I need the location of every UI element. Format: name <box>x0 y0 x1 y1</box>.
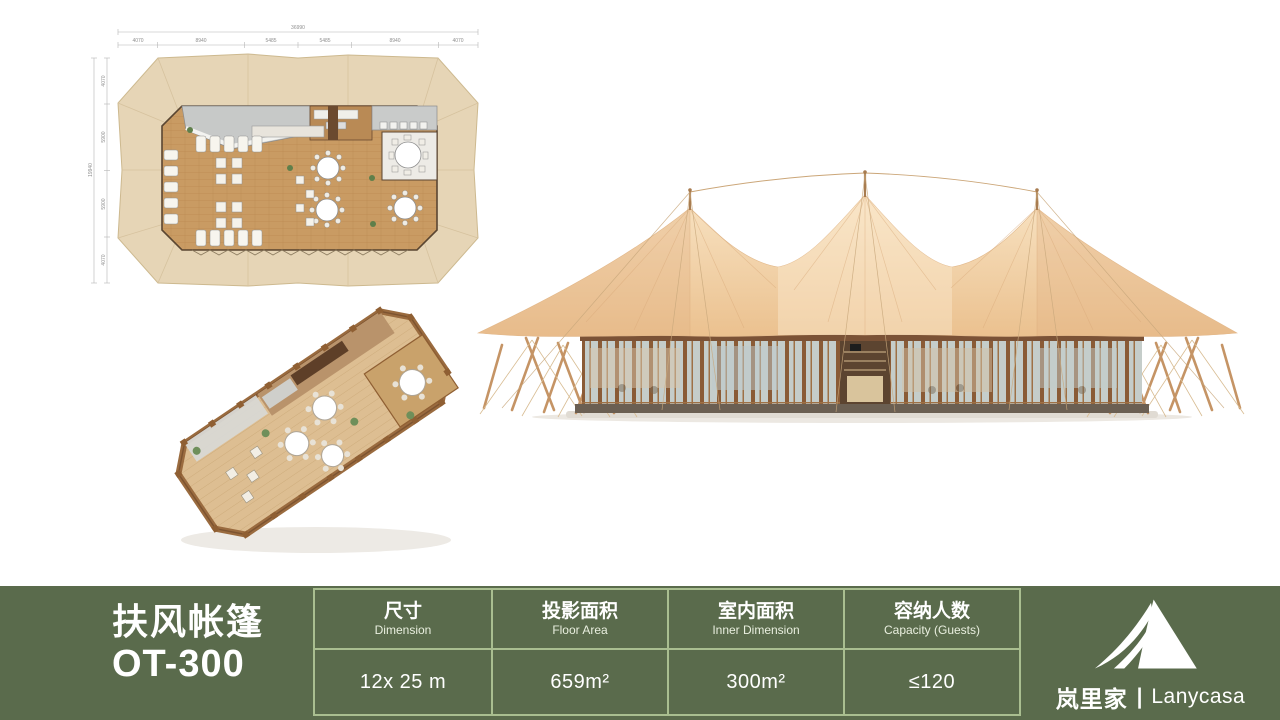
spec-header-dimension: 尺寸 Dimension <box>315 590 491 650</box>
dim-seg: 4070 <box>132 38 143 44</box>
plan-bar-counter <box>252 126 324 137</box>
dim-total-width: 36990 <box>291 25 305 31</box>
spec-value-dimension: 12x 25 m <box>315 650 491 714</box>
plinth <box>575 404 1149 413</box>
plan-wine-cabinet <box>328 106 338 140</box>
spec-header-en: Capacity (Guests) <box>884 623 980 637</box>
brand-separator: | <box>1137 684 1143 709</box>
isometric-interior-view <box>148 278 478 576</box>
spec-value: 12x 25 m <box>360 671 446 694</box>
spec-table: 尺寸 Dimension 投影面积 Floor Area 室内面积 Inner … <box>313 588 1021 716</box>
product-name: 扶风帐篷 <box>112 600 312 643</box>
spec-header-en: Floor Area <box>552 623 607 637</box>
tent-building <box>575 330 1149 413</box>
spec-header-floor-area: 投影面积 Floor Area <box>491 590 667 650</box>
dim-seg: 5485 <box>319 38 330 44</box>
dim-seg: 4070 <box>101 254 107 265</box>
bar-counter <box>847 376 883 402</box>
product-title-block: 扶风帐篷 OT-300 <box>112 600 312 687</box>
spec-value: 659m² <box>550 671 609 694</box>
dimension-lines-left: 19940 4070 5900 5900 4070 <box>88 58 110 283</box>
tent-logo-icon <box>1076 596 1226 678</box>
spec-header-cn: 室内面积 <box>718 601 794 623</box>
spec-value-capacity: ≤120 <box>843 650 1019 714</box>
spec-header-cn: 尺寸 <box>384 601 422 623</box>
product-model: OT-300 <box>112 643 312 687</box>
floor-plan-drawing: 36990 4070 8940 5485 5485 8940 4070 1994… <box>80 18 495 293</box>
dim-seg: 5485 <box>265 38 276 44</box>
spec-header-inner-dimension: 室内面积 Inner Dimension <box>667 590 843 650</box>
brand-block: 岚里家 | Lanycasa <box>1021 586 1280 720</box>
dim-seg: 4070 <box>101 75 107 86</box>
spec-header-en: Dimension <box>375 623 432 637</box>
dim-seg: 4070 <box>452 38 463 44</box>
brand-name-cn: 岚里家 <box>1056 680 1128 714</box>
spec-header-cn: 投影面积 <box>542 601 618 623</box>
spec-value: ≤120 <box>909 671 955 694</box>
spec-value-inner-dimension: 300m² <box>667 650 843 714</box>
spec-sheet-slide: 36990 4070 8940 5485 5485 8940 4070 1994… <box>0 0 1280 720</box>
dim-seg: 8940 <box>195 38 206 44</box>
plan-closets <box>380 122 427 129</box>
tent-exterior-render <box>462 170 1280 425</box>
tv-screen <box>850 344 861 351</box>
dim-seg: 5900 <box>101 198 107 209</box>
tent-canopy <box>478 195 1237 337</box>
spec-bar: 扶风帐篷 OT-300 尺寸 Dimension 投影面积 Floor Area… <box>0 586 1280 720</box>
spec-header-cn: 容纳人数 <box>894 601 970 623</box>
bar-area <box>840 340 890 404</box>
plan-building <box>162 106 437 255</box>
spec-header-capacity: 容纳人数 Capacity (Guests) <box>843 590 1019 650</box>
spec-value-floor-area: 659m² <box>491 650 667 714</box>
brand-name-en: Lanycasa <box>1151 685 1245 709</box>
spec-value: 300m² <box>726 671 785 694</box>
dimension-lines-top: 36990 4070 8940 5485 5485 8940 4070 <box>118 25 478 48</box>
brand-text: 岚里家 | Lanycasa <box>1056 680 1246 714</box>
spec-header-en: Inner Dimension <box>712 623 799 637</box>
dim-seg: 8940 <box>389 38 400 44</box>
dim-total-depth: 19940 <box>88 163 94 177</box>
dim-seg: 5900 <box>101 131 107 142</box>
